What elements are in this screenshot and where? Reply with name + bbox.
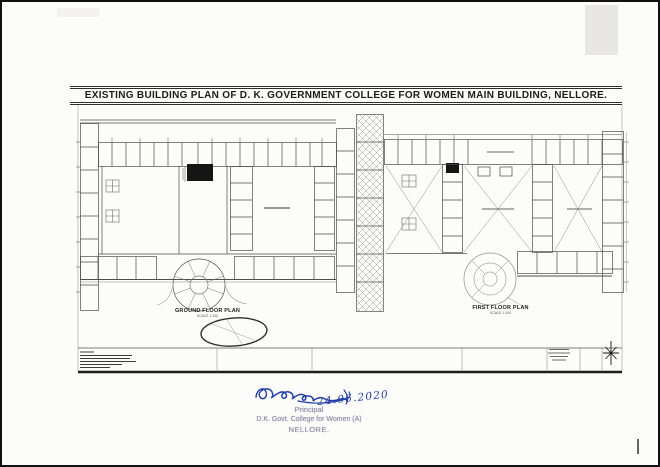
first-floor-caption: FIRST FLOOR PLAN SCALE 1:100 [452, 305, 549, 315]
scanned-building-plan-sheet: EXISTING BUILDING PLAN OF D. K. GOVERNME… [0, 0, 660, 467]
ground-floor-plan [76, 120, 355, 311]
sheet-borders [78, 105, 622, 372]
stamp-line-2: D.K. Govt. College for Women (A) [244, 415, 374, 425]
first-floor-scale: SCALE 1:100 [452, 311, 549, 315]
stage-block [187, 164, 213, 181]
ground-floor-scale: SCALE 1:100 [160, 314, 255, 318]
circular-portico [157, 259, 247, 311]
first-floor-plan [356, 115, 629, 312]
bottom-title-block [78, 341, 622, 372]
stamp-line-1: Principal [244, 405, 374, 415]
contractor-text-lines [548, 350, 570, 361]
principal-stamp: Principal D.K. Govt. College for Women (… [244, 405, 374, 435]
ground-floor-caption: GROUND FLOOR PLAN SCALE 1:100 [160, 308, 255, 318]
north-arrow-icon [603, 341, 619, 365]
spiral-portico [464, 253, 524, 307]
notes-text-lines [80, 352, 136, 368]
stamp-line-3: NELLORE. [244, 425, 374, 435]
hand-drawn-oval [200, 316, 268, 349]
